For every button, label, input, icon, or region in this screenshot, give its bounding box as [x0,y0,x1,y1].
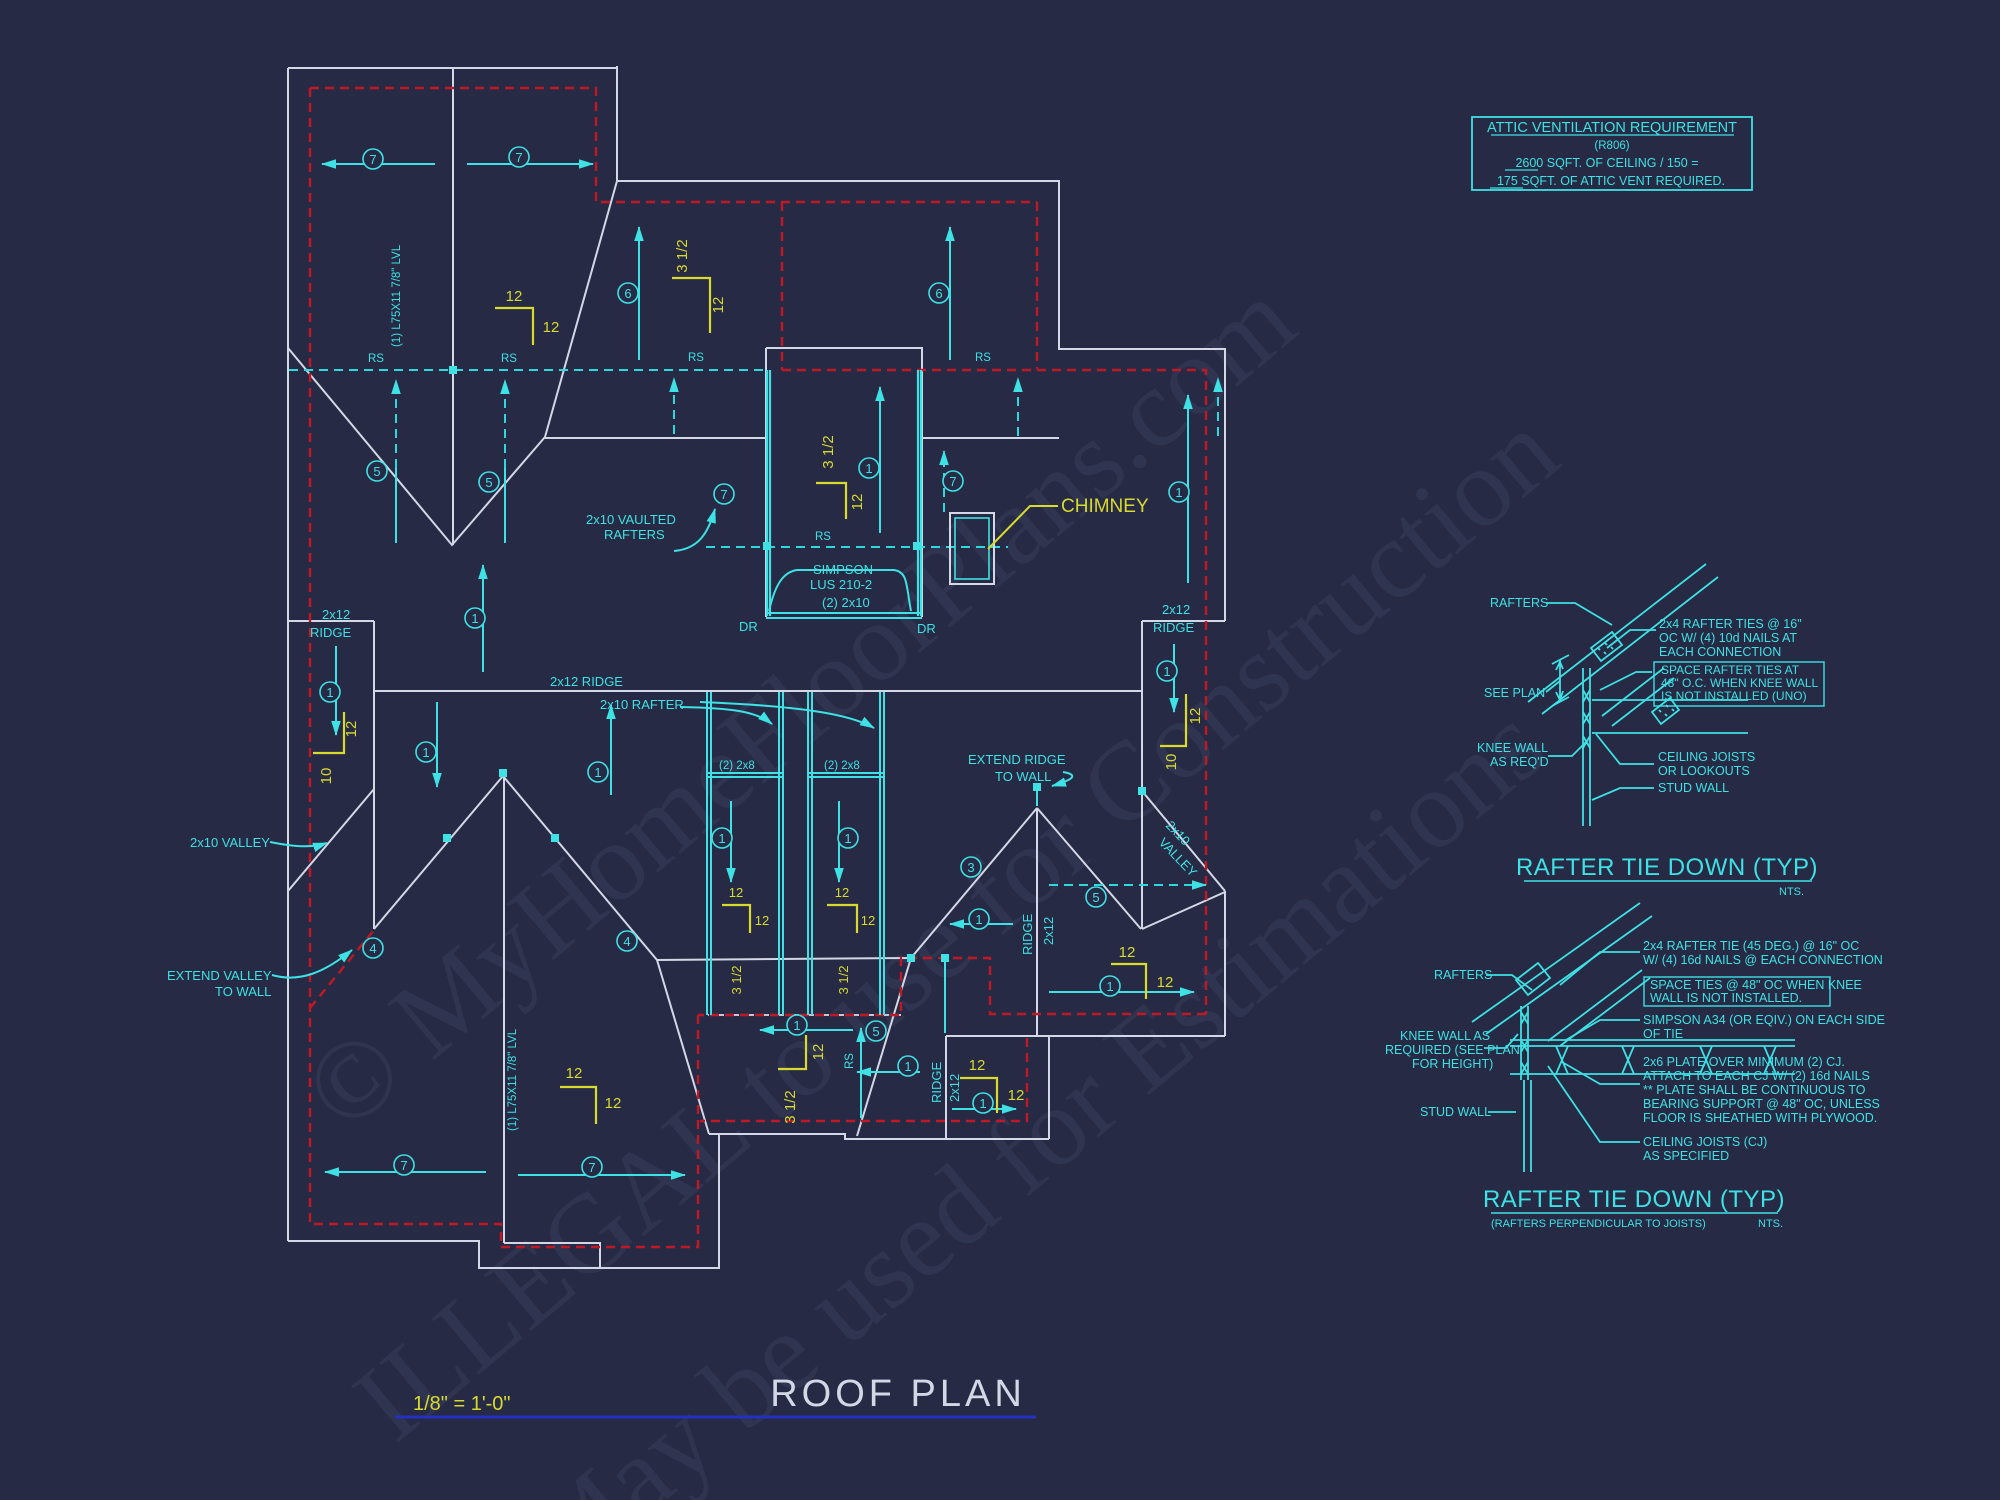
svg-text:12: 12 [343,721,360,738]
svg-text:FLOOR IS SHEATHED WITH PLYWOOD: FLOOR IS SHEATHED WITH PLYWOOD. [1643,1111,1877,1125]
svg-text:12: 12 [566,1065,583,1082]
svg-text:IS NOT INSTALLED (UNO): IS NOT INSTALLED (UNO) [1661,689,1807,703]
svg-text:RAFTERS: RAFTERS [1434,968,1492,982]
svg-text:CEILING JOISTS (CJ): CEILING JOISTS (CJ) [1643,1135,1767,1149]
svg-text:W/ (4) 16d NAILS @ EACH CONNEC: W/ (4) 16d NAILS @ EACH CONNECTION [1643,953,1883,967]
svg-text:OC W/ (4) 10d NAILS AT: OC W/ (4) 10d NAILS AT [1659,631,1797,645]
svg-text:(1) L75X11 7/8" LVL: (1) L75X11 7/8" LVL [391,244,403,347]
svg-text:STUD WALL: STUD WALL [1420,1105,1491,1119]
svg-text:2x12: 2x12 [947,1074,962,1102]
svg-text:1: 1 [1175,485,1182,500]
svg-text:7: 7 [515,150,522,165]
svg-text:5: 5 [485,475,492,490]
svg-text:KNEE WALL AS: KNEE WALL AS [1400,1029,1490,1043]
svg-text:LUS 210-2: LUS 210-2 [810,577,872,592]
svg-text:CEILING JOISTS: CEILING JOISTS [1658,750,1755,764]
svg-text:3: 3 [967,860,974,875]
svg-text:SIMPSON A34 (OR EQIV.) ON EACH: SIMPSON A34 (OR EQIV.) ON EACH SIDE [1643,1013,1885,1027]
svg-text:1: 1 [904,1059,911,1074]
svg-text:RAFTERS: RAFTERS [604,527,665,542]
svg-text:1: 1 [1163,664,1170,679]
svg-text:1/8" = 1'-0": 1/8" = 1'-0" [413,1393,511,1415]
svg-text:2x12: 2x12 [1041,917,1056,945]
svg-text:10: 10 [1163,754,1180,771]
svg-text:12: 12 [1119,944,1136,961]
svg-text:ATTACH TO EACH CJ W/ (2) 16d N: ATTACH TO EACH CJ W/ (2) 16d NAILS [1643,1069,1870,1083]
svg-text:4: 4 [369,941,376,956]
svg-text:EXTEND RIDGE: EXTEND RIDGE [968,752,1066,767]
svg-text:7: 7 [369,152,376,167]
svg-text:RS: RS [815,531,831,543]
svg-text:RAFTER TIE DOWN (TYP): RAFTER TIE DOWN (TYP) [1516,854,1818,881]
svg-text:12: 12 [810,1044,827,1061]
svg-text:DR: DR [739,619,758,634]
svg-text:(2) 2x8: (2) 2x8 [719,760,755,772]
svg-text:5: 5 [872,1024,879,1039]
svg-text:TO WALL: TO WALL [995,769,1051,784]
svg-text:10: 10 [318,768,335,785]
svg-text:1: 1 [326,685,333,700]
svg-text:RS: RS [501,353,517,365]
svg-text:2x4 RAFTER TIES @ 16": 2x4 RAFTER TIES @ 16" [1659,617,1802,631]
svg-text:3 1/2: 3 1/2 [729,966,744,995]
svg-text:OR LOOKOUTS: OR LOOKOUTS [1658,764,1750,778]
svg-text:175 SQFT. OF ATTIC VENT REQUI: 175 SQFT. OF ATTIC VENT REQUIRED. [1497,174,1725,188]
svg-text:2x12: 2x12 [322,607,350,622]
svg-text:NTS.: NTS. [1758,1218,1783,1230]
svg-text:RAFTERS: RAFTERS [1490,596,1548,610]
svg-text:AS SPECIFIED: AS SPECIFIED [1643,1149,1729,1163]
svg-text:OF TIE: OF TIE [1643,1027,1683,1041]
svg-text:7: 7 [588,1160,595,1175]
svg-text:6: 6 [624,286,631,301]
svg-text:12: 12 [1157,974,1174,991]
svg-text:(R806): (R806) [1594,140,1629,152]
svg-text:12: 12 [710,297,727,314]
svg-text:3 1/2: 3 1/2 [836,966,851,995]
svg-text:12: 12 [1008,1087,1025,1104]
svg-text:1: 1 [422,745,429,760]
svg-text:RIDGE: RIDGE [1153,620,1195,635]
svg-text:RS: RS [368,353,384,365]
svg-text:7: 7 [720,487,727,502]
svg-text:12: 12 [605,1095,622,1112]
svg-text:5: 5 [1092,890,1099,905]
svg-text:CHIMNEY: CHIMNEY [1061,496,1149,517]
svg-text:(2) 2x10: (2) 2x10 [822,595,870,610]
svg-text:RIDGE: RIDGE [310,625,352,640]
svg-text:ROOF PLAN: ROOF PLAN [770,1373,1026,1415]
svg-text:2x10 VALLEY: 2x10 VALLEY [190,835,270,850]
svg-text:48" O.C. WHEN KNEE WALL: 48" O.C. WHEN KNEE WALL [1661,676,1819,690]
svg-text:4: 4 [623,934,630,949]
svg-text:EACH CONNECTION: EACH CONNECTION [1659,645,1781,659]
svg-text:12: 12 [1187,708,1204,725]
svg-text:WALL IS NOT INSTALLED.: WALL IS NOT INSTALLED. [1650,991,1802,1005]
svg-text:1: 1 [471,611,478,626]
svg-text:12: 12 [861,913,875,928]
svg-text:12: 12 [849,494,866,511]
svg-text:NTS.: NTS. [1779,886,1804,898]
svg-text:2600 SQFT. OF CEILING / 150 =: 2600 SQFT. OF CEILING / 150 = [1515,156,1698,170]
svg-text:1: 1 [975,912,982,927]
svg-text:SIMPSON: SIMPSON [813,562,873,577]
svg-text:7: 7 [949,474,956,489]
svg-text:DR: DR [917,621,936,636]
svg-text:2x10 VAULTED: 2x10 VAULTED [586,512,676,527]
svg-text:1: 1 [718,831,725,846]
svg-text:KNEE WALL: KNEE WALL [1477,741,1548,755]
svg-text:12: 12 [506,288,523,305]
svg-text:RS: RS [844,1053,856,1069]
svg-text:AS REQ'D: AS REQ'D [1490,755,1549,769]
svg-text:5: 5 [373,464,380,479]
svg-text:6: 6 [935,286,942,301]
svg-text:3 1/2: 3 1/2 [674,239,691,272]
svg-text:BEARING SUPPORT @ 48" OC, UNLE: BEARING SUPPORT @ 48" OC, UNLESS [1643,1097,1880,1111]
svg-text:12: 12 [543,319,560,336]
svg-text:12: 12 [835,885,849,900]
svg-text:RS: RS [975,352,991,364]
svg-text:REQUIRED (SEE PLAN: REQUIRED (SEE PLAN [1385,1043,1520,1057]
svg-text:STUD WALL: STUD WALL [1658,781,1729,795]
svg-text:12: 12 [755,913,769,928]
svg-text:2x6 PLATE OVER MINIMUM (2) CJ.: 2x6 PLATE OVER MINIMUM (2) CJ. [1643,1055,1845,1069]
svg-text:RS: RS [688,352,704,364]
svg-text:SPACE RAFTER TIES AT: SPACE RAFTER TIES AT [1661,663,1800,677]
svg-text:(RAFTERS PERPENDICULAR TO JOIS: (RAFTERS PERPENDICULAR TO JOISTS) [1491,1218,1706,1230]
svg-text:2x12 RIDGE: 2x12 RIDGE [550,674,623,689]
svg-text:(1) L75X11 7/8" LVL: (1) L75X11 7/8" LVL [507,1028,519,1131]
svg-text:RIDGE: RIDGE [1020,914,1035,956]
svg-text:TO WALL: TO WALL [215,984,271,999]
svg-text:1: 1 [979,1096,986,1111]
svg-text:7: 7 [400,1158,407,1173]
svg-text:** PLATE SHALL BE CONTINUOUS T: ** PLATE SHALL BE CONTINUOUS TO [1643,1083,1866,1097]
svg-text:RAFTER TIE DOWN (TYP): RAFTER TIE DOWN (TYP) [1483,1186,1785,1213]
svg-text:2x12: 2x12 [1162,602,1190,617]
svg-text:1: 1 [1106,979,1113,994]
svg-text:(2) 2x8: (2) 2x8 [824,760,860,772]
svg-text:3 1/2: 3 1/2 [820,435,837,468]
svg-text:1: 1 [844,831,851,846]
svg-text:12: 12 [729,885,743,900]
svg-text:2x10 RAFTER: 2x10 RAFTER [600,697,684,712]
svg-text:RIDGE: RIDGE [929,1062,944,1104]
svg-text:1: 1 [594,765,601,780]
svg-text:2x4 RAFTER TIE (45 DEG.) @ 16": 2x4 RAFTER TIE (45 DEG.) @ 16" OC [1643,939,1859,953]
svg-text:12: 12 [969,1057,986,1074]
svg-text:ATTIC VENTILATION REQUIREMENT: ATTIC VENTILATION REQUIREMENT [1487,120,1737,136]
svg-text:3 1/2: 3 1/2 [782,1090,799,1123]
svg-text:1: 1 [793,1018,800,1033]
svg-text:SEE PLAN: SEE PLAN [1484,686,1545,700]
svg-text:1: 1 [865,461,872,476]
svg-text:EXTEND VALLEY: EXTEND VALLEY [167,968,272,983]
svg-text:FOR HEIGHT): FOR HEIGHT) [1412,1057,1493,1071]
